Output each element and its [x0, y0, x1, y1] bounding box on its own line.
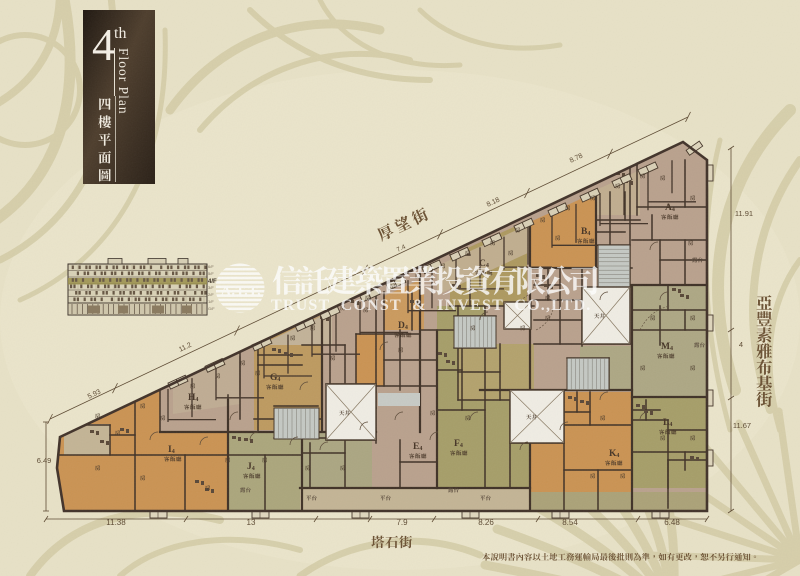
svg-text:1/F: 1/F: [208, 299, 214, 304]
svg-text:4: 4: [739, 340, 743, 349]
svg-text:8.26: 8.26: [478, 518, 494, 527]
svg-text:TRUST CONST & INVEST CO.,L: TRUST CONST & INVEST CO.,LTD.: [271, 297, 591, 314]
svg-text:8.54: 8.54: [562, 518, 578, 527]
svg-text:13: 13: [247, 518, 256, 527]
svg-text:6.48: 6.48: [664, 518, 680, 527]
svg-text:7.9: 7.9: [396, 518, 408, 527]
svg-text:Floor Plan: Floor Plan: [116, 48, 131, 115]
svg-text:th: th: [114, 25, 126, 42]
svg-text:11.67: 11.67: [733, 421, 751, 430]
svg-text:2/F: 2/F: [208, 292, 214, 297]
svg-text:6/F: 6/F: [208, 264, 214, 269]
svg-text:11.38: 11.38: [106, 518, 126, 527]
svg-text:G/F: G/F: [208, 306, 215, 311]
svg-text:A.T.T.: A.T.T.: [221, 284, 261, 299]
svg-text:4: 4: [92, 19, 115, 70]
svg-text:5/F: 5/F: [208, 271, 214, 276]
svg-text:3/F: 3/F: [208, 285, 214, 290]
svg-text:6.49: 6.49: [37, 456, 52, 465]
svg-text:11.91: 11.91: [735, 209, 753, 218]
